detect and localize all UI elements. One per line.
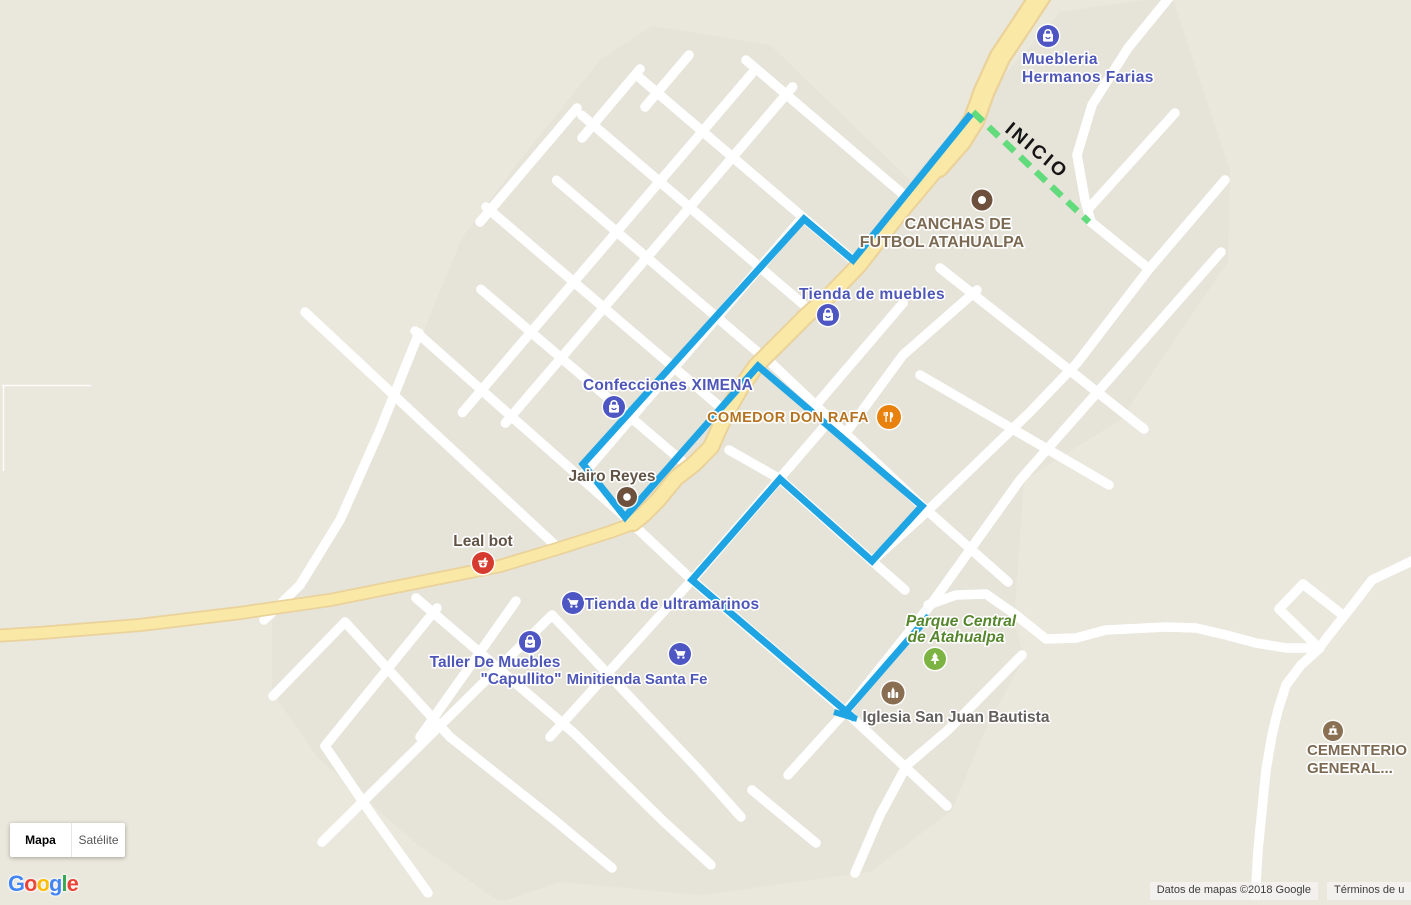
svg-text:Confecciones XIMENA: Confecciones XIMENA bbox=[583, 377, 753, 394]
svg-text:Jairo Reyes: Jairo Reyes bbox=[568, 468, 655, 485]
svg-text:Iglesia San Juan Bautista: Iglesia San Juan Bautista bbox=[863, 709, 1050, 726]
svg-text:Tienda de muebles: Tienda de muebles bbox=[799, 286, 945, 303]
svg-text:COMEDOR DON RAFA: COMEDOR DON RAFA bbox=[707, 410, 869, 426]
svg-text:Parque Central: Parque Central bbox=[906, 613, 1017, 630]
svg-text:FUTBOL ATAHUALPA: FUTBOL ATAHUALPA bbox=[860, 234, 1025, 251]
svg-text:CANCHAS DE: CANCHAS DE bbox=[905, 216, 1012, 233]
svg-text:"Capullito": "Capullito" bbox=[481, 671, 562, 688]
svg-text:Muebleria: Muebleria bbox=[1022, 51, 1098, 68]
svg-text:Leal bot: Leal bot bbox=[453, 533, 512, 550]
svg-text:Minitienda Santa Fe: Minitienda Santa Fe bbox=[567, 671, 708, 688]
svg-text:Taller De Muebles: Taller De Muebles bbox=[430, 654, 561, 671]
svg-text:de Atahualpa: de Atahualpa bbox=[908, 629, 1005, 646]
svg-text:Tienda de ultramarinos: Tienda de ultramarinos bbox=[585, 596, 760, 613]
svg-text:GENERAL...: GENERAL... bbox=[1307, 760, 1393, 777]
svg-text:Hermanos Farias: Hermanos Farias bbox=[1022, 69, 1154, 86]
svg-text:CEMENTERIO: CEMENTERIO bbox=[1307, 742, 1407, 759]
